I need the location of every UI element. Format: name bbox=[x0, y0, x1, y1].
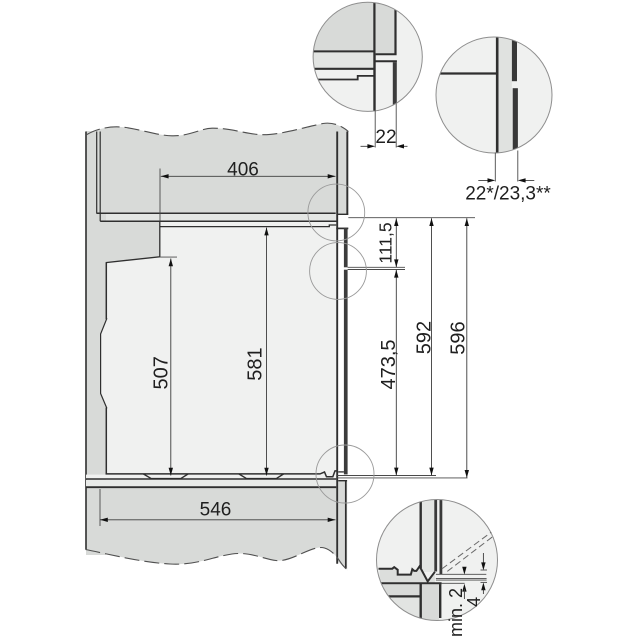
svg-text:507: 507 bbox=[150, 356, 172, 389]
svg-text:546: 546 bbox=[200, 499, 232, 520]
svg-text:min. 2: min. 2 bbox=[446, 588, 466, 637]
svg-text:581: 581 bbox=[244, 347, 266, 380]
svg-text:22: 22 bbox=[375, 127, 396, 148]
svg-text:406: 406 bbox=[227, 160, 259, 181]
svg-text:473,5: 473,5 bbox=[378, 339, 400, 389]
svg-text:22*/23,3**: 22*/23,3** bbox=[465, 184, 551, 205]
svg-text:592: 592 bbox=[414, 321, 436, 354]
svg-text:111,5: 111,5 bbox=[375, 222, 395, 263]
svg-text:4: 4 bbox=[464, 597, 484, 607]
svg-text:596: 596 bbox=[447, 321, 469, 354]
